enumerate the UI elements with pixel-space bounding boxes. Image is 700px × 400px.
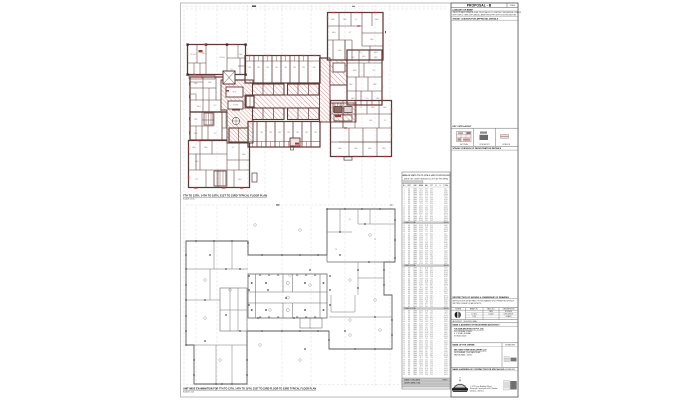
svg-text:98.8: 98.8 — [430, 332, 433, 334]
svg-text:90.89: 90.89 — [444, 203, 448, 205]
svg-text:2BHK: 2BHK — [413, 336, 417, 338]
svg-text:88.17: 88.17 — [419, 313, 423, 315]
svg-text:2BHK: 2BHK — [413, 317, 417, 319]
svg-text:102.5: 102.5 — [430, 285, 434, 287]
svg-text:409: 409 — [408, 229, 411, 231]
svg-text:78.75: 78.75 — [419, 233, 423, 235]
svg-text:2BHK: 2BHK — [413, 190, 417, 192]
svg-text:4.61: 4.61 — [425, 315, 428, 317]
svg-text:2BHK: 2BHK — [413, 210, 417, 212]
svg-text:4.98: 4.98 — [425, 364, 428, 366]
svg-text:9999.9: 9999.9 — [443, 379, 448, 381]
svg-text:90.2: 90.2 — [444, 188, 447, 190]
svg-text:2BHK: 2BHK — [413, 366, 417, 368]
svg-text:2BHK: 2BHK — [413, 351, 417, 353]
svg-text:2BHK: 2BHK — [413, 285, 417, 287]
svg-text:86.61: 86.61 — [419, 218, 423, 220]
svg-text:2BHK: 2BHK — [413, 214, 417, 216]
svg-text:8.2: 8.2 — [426, 231, 428, 233]
svg-text:ROOM: ROOM — [190, 54, 196, 56]
svg-text:49.41: 49.41 — [419, 250, 423, 252]
svg-text:209: 209 — [408, 205, 411, 207]
svg-text:63.19: 63.19 — [444, 364, 448, 366]
svg-text:88.33: 88.33 — [419, 332, 423, 334]
svg-text:102: 102 — [408, 212, 411, 214]
svg-text:52.03: 52.03 — [419, 199, 423, 201]
svg-text:3.64: 3.64 — [425, 370, 428, 372]
svg-text:67: 67 — [403, 336, 405, 338]
svg-text:26: 26 — [403, 244, 405, 246]
svg-text:AREA OF UNITS 7TH TO 12TH & 14: AREA OF UNITS 7TH TO 12TH & 14TH TO 19TH… — [403, 174, 451, 177]
svg-text:10: 10 — [403, 207, 405, 209]
svg-text:62.54: 62.54 — [444, 205, 448, 207]
svg-text:69: 69 — [403, 340, 405, 342]
svg-text:84.52: 84.52 — [419, 207, 423, 209]
svg-text:2BHK: 2BHK — [413, 334, 417, 336]
svg-text:101.0: 101.0 — [430, 317, 434, 319]
svg-text:209: 209 — [408, 340, 411, 342]
svg-text:18: 18 — [403, 227, 405, 229]
svg-text:201: 201 — [408, 278, 411, 280]
svg-text:RESTRICTION OF SIGNING & OWNER: RESTRICTION OF SIGNING & OWNERSHIP OF DR… — [453, 296, 510, 299]
svg-text:21: 21 — [403, 233, 405, 235]
svg-text:58.1: 58.1 — [430, 235, 433, 237]
svg-text:31: 31 — [403, 255, 405, 257]
svg-text:52.59: 52.59 — [419, 368, 423, 370]
svg-text:302: 302 — [408, 368, 411, 370]
svg-text:2BHK: 2BHK — [413, 315, 417, 317]
svg-text:46.03: 46.03 — [419, 289, 423, 291]
svg-text:41: 41 — [403, 278, 405, 280]
svg-text:95.6: 95.6 — [430, 231, 433, 233]
svg-text:52.12: 52.12 — [419, 205, 423, 207]
svg-text:89.07: 89.07 — [419, 195, 423, 197]
svg-text:306: 306 — [408, 334, 411, 336]
svg-text:55.4: 55.4 — [430, 252, 433, 254]
svg-text:306: 306 — [408, 199, 411, 201]
svg-text:2BHK: 2BHK — [413, 225, 417, 227]
svg-text:403: 403 — [408, 193, 411, 195]
svg-text:300: 300 — [408, 252, 411, 254]
svg-text:66.9: 66.9 — [430, 361, 433, 363]
svg-text:51.06: 51.06 — [419, 353, 423, 355]
svg-text:92.99: 92.99 — [444, 302, 448, 304]
svg-text:81: 81 — [403, 366, 405, 368]
svg-text:207: 207 — [408, 225, 411, 227]
svg-text:SIGNATURE: SIGNATURE — [505, 368, 516, 371]
svg-text:17 SLB: 17 SLB — [472, 314, 477, 316]
svg-text:72.1: 72.1 — [430, 315, 433, 317]
svg-text:25: 25 — [403, 242, 405, 244]
svg-text:63.11: 63.11 — [444, 368, 448, 370]
svg-text:407: 407 — [408, 291, 411, 293]
svg-text:306: 306 — [408, 289, 411, 291]
svg-text:50: 50 — [403, 297, 405, 299]
svg-text:81.04: 81.04 — [444, 315, 448, 317]
svg-text:KIT: KIT — [196, 179, 199, 181]
svg-text:308: 308 — [408, 317, 411, 319]
svg-text:79.37: 79.37 — [444, 345, 448, 347]
svg-text:999.99: 999.99 — [444, 308, 449, 310]
svg-text:5.81: 5.81 — [425, 353, 428, 355]
svg-text:304: 304 — [408, 216, 411, 218]
svg-text:24: 24 — [403, 240, 405, 242]
svg-text:52.53: 52.53 — [419, 235, 423, 237]
svg-text:3.27: 3.27 — [425, 197, 428, 199]
svg-text:407: 407 — [408, 201, 411, 203]
svg-text:65.4: 65.4 — [430, 347, 433, 349]
svg-text:2BHK: 2BHK — [413, 313, 417, 315]
svg-text:94.2: 94.2 — [430, 229, 433, 231]
svg-text:13: 13 — [403, 214, 405, 216]
svg-text:60.82: 60.82 — [419, 227, 423, 229]
svg-text:54.57: 54.57 — [419, 276, 423, 278]
svg-text:207: 207 — [408, 315, 411, 317]
svg-text:65.62: 65.62 — [444, 246, 448, 248]
svg-text:64.95: 64.95 — [419, 311, 423, 313]
svg-text:2BHK: 2BHK — [413, 361, 417, 363]
svg-text:40.63: 40.63 — [419, 300, 423, 302]
svg-text:2BHK: 2BHK — [413, 193, 417, 195]
svg-text:58: 58 — [403, 317, 405, 319]
svg-text:71.8: 71.8 — [430, 357, 433, 359]
svg-text:6.03: 6.03 — [425, 214, 428, 216]
svg-text:2BHK: 2BHK — [413, 357, 417, 359]
svg-text:306: 306 — [408, 244, 411, 246]
svg-text:86.36: 86.36 — [419, 259, 423, 261]
svg-text:63.1: 63.1 — [430, 268, 433, 270]
svg-text:43.49: 43.49 — [419, 293, 423, 295]
svg-text:999.99: 999.99 — [444, 265, 449, 267]
svg-text:KIT: KIT — [214, 105, 217, 107]
svg-text:113.68: 113.68 — [444, 355, 448, 357]
svg-text:48.04: 48.04 — [444, 328, 448, 330]
svg-text:87.39: 87.39 — [419, 231, 423, 233]
svg-text:9.85: 9.85 — [425, 340, 428, 342]
svg-text:4.79: 4.79 — [425, 201, 428, 203]
svg-text:76.5: 76.5 — [430, 311, 433, 313]
svg-text:308: 308 — [408, 359, 411, 361]
svg-text:30: 30 — [403, 252, 405, 254]
svg-text:90.19: 90.19 — [419, 317, 423, 319]
svg-text:45.1: 45.1 — [420, 216, 423, 218]
svg-text:102.74: 102.74 — [444, 229, 449, 231]
svg-text:2BHK: 2BHK — [413, 276, 417, 278]
svg-text:2BHK: 2BHK — [413, 195, 417, 197]
svg-text:2BHK: 2BHK — [413, 353, 417, 355]
svg-text:5.6: 5.6 — [426, 235, 428, 237]
svg-text:55.24: 55.24 — [444, 289, 448, 291]
svg-text:105.84: 105.84 — [444, 270, 449, 272]
svg-text:2BHK: 2BHK — [413, 270, 417, 272]
svg-text:113.83: 113.83 — [444, 285, 448, 287]
svg-text:100.27: 100.27 — [444, 291, 449, 293]
svg-text:NAVI MUMBAI - 400705: NAVI MUMBAI - 400705 — [454, 353, 472, 356]
svg-text:2BHK: 2BHK — [413, 338, 417, 340]
svg-text:79: 79 — [403, 361, 405, 363]
svg-text:75: 75 — [403, 353, 405, 355]
svg-text:20: 20 — [403, 231, 405, 233]
svg-text:7.59: 7.59 — [425, 285, 428, 287]
svg-text:4.4: 4.4 — [426, 212, 428, 214]
svg-text:105.95: 105.95 — [444, 336, 449, 338]
svg-text:2BHK: 2BHK — [413, 242, 417, 244]
svg-text:59.8: 59.8 — [430, 276, 433, 278]
svg-text:304: 304 — [408, 351, 411, 353]
svg-text:90.4: 90.4 — [430, 291, 433, 293]
svg-text:96.61: 96.61 — [444, 193, 448, 195]
svg-text:2BHK: 2BHK — [413, 349, 417, 351]
svg-text:33: 33 — [403, 259, 405, 261]
svg-text:5.36: 5.36 — [425, 278, 428, 280]
svg-text:403: 403 — [408, 283, 411, 285]
svg-text:54.0: 54.0 — [444, 287, 447, 289]
svg-text:63.5: 63.5 — [430, 304, 433, 306]
svg-text:7.66: 7.66 — [425, 357, 428, 359]
svg-text:103.2: 103.2 — [430, 255, 434, 257]
svg-text:302: 302 — [408, 280, 411, 282]
svg-text:5.22: 5.22 — [425, 276, 428, 278]
svg-text:2BHK: 2BHK — [413, 289, 417, 291]
svg-text:2BHK: 2BHK — [413, 355, 417, 357]
svg-text:73: 73 — [403, 349, 405, 351]
svg-text:75.17: 75.17 — [419, 188, 423, 190]
svg-text:11.49: 11.49 — [425, 268, 429, 270]
svg-text:52.68: 52.68 — [444, 366, 448, 368]
svg-text:74.96: 74.96 — [419, 242, 423, 244]
svg-text:2BHK: 2BHK — [413, 330, 417, 332]
svg-text:54.68: 54.68 — [419, 246, 423, 248]
svg-text:409: 409 — [408, 274, 411, 276]
svg-text:67.53: 67.53 — [419, 315, 423, 317]
svg-text:51.7: 51.7 — [430, 359, 433, 361]
svg-text:65.62: 65.62 — [444, 304, 448, 306]
svg-text:54.58: 54.58 — [419, 347, 423, 349]
svg-text:4.97: 4.97 — [425, 283, 428, 285]
svg-text:61.27: 61.27 — [444, 353, 448, 355]
svg-text:401: 401 — [408, 300, 411, 302]
svg-text:11: 11 — [403, 210, 405, 212]
svg-text:9.02: 9.02 — [425, 372, 428, 374]
svg-text:63: 63 — [403, 328, 405, 330]
svg-text:3.87: 3.87 — [425, 216, 428, 218]
svg-text:106: 106 — [408, 355, 411, 357]
svg-text:75.64: 75.64 — [419, 248, 423, 250]
svg-text:209: 209 — [408, 295, 411, 297]
svg-text:3.42: 3.42 — [425, 287, 428, 289]
svg-text:43.81: 43.81 — [419, 340, 423, 342]
svg-text:50.1: 50.1 — [430, 300, 433, 302]
svg-text:M: 98200 00000: M: 98200 00000 — [454, 336, 466, 338]
svg-text:409: 409 — [408, 319, 411, 321]
svg-text:78.4: 78.4 — [430, 188, 433, 190]
svg-text:90.3: 90.3 — [420, 274, 423, 276]
svg-text:65.48: 65.48 — [444, 276, 448, 278]
svg-text:201: 201 — [408, 366, 411, 368]
svg-text:8.57: 8.57 — [425, 229, 428, 231]
svg-text:70.31: 70.31 — [444, 361, 448, 363]
svg-text:84.76: 84.76 — [444, 257, 448, 259]
svg-text:STAGE 1 DESIGN FOR APPROVAL DE: STAGE 1 DESIGN FOR APPROVAL DETAILS — [453, 17, 499, 20]
svg-text:77.49: 77.49 — [419, 302, 423, 304]
svg-text:Mumbai - 400 001.: Mumbai - 400 001. — [470, 391, 485, 393]
svg-text:103.93: 103.93 — [444, 218, 449, 220]
svg-text:8.77: 8.77 — [425, 304, 428, 306]
svg-text:51.6: 51.6 — [420, 268, 423, 270]
svg-text:79.2: 79.2 — [430, 351, 433, 353]
svg-text:83.2: 83.2 — [430, 280, 433, 282]
svg-text:SCALE 1:100: SCALE 1:100 — [183, 198, 194, 201]
svg-text:15: 15 — [403, 218, 405, 220]
svg-text:48.4: 48.4 — [430, 287, 433, 289]
svg-text:74.1: 74.1 — [430, 345, 433, 347]
svg-text:9.98: 9.98 — [425, 259, 428, 261]
svg-text:14: 14 — [403, 216, 405, 218]
svg-text:2BHK: 2BHK — [413, 291, 417, 293]
svg-text:304: 304 — [408, 261, 411, 263]
svg-text:405: 405 — [408, 218, 411, 220]
svg-text:3.78: 3.78 — [425, 195, 428, 197]
svg-text:41.46: 41.46 — [419, 201, 423, 203]
svg-text:7.55: 7.55 — [425, 199, 428, 201]
svg-text:102: 102 — [408, 257, 411, 259]
svg-text:54.12: 54.12 — [444, 216, 448, 218]
svg-text:KIT: KIT — [373, 70, 376, 72]
svg-text:94.86: 94.86 — [419, 285, 423, 287]
svg-text:N: N — [435, 185, 436, 187]
svg-text:85.3: 85.3 — [430, 302, 433, 304]
svg-text:2BHK: 2BHK — [413, 252, 417, 254]
svg-text:2BHK: 2BHK — [413, 229, 417, 231]
svg-text:88.19: 88.19 — [444, 321, 448, 323]
svg-text:SCALE 1:100: SCALE 1:100 — [183, 390, 194, 393]
svg-text:106: 106 — [408, 313, 411, 315]
svg-text:9.57: 9.57 — [425, 351, 428, 353]
svg-text:HALL: HALL — [332, 31, 336, 34]
svg-text:57: 57 — [403, 315, 405, 317]
svg-text:80.51: 80.51 — [419, 193, 423, 195]
svg-text:45.56: 45.56 — [419, 240, 423, 242]
svg-text:66.14: 66.14 — [419, 345, 423, 347]
svg-text:72.98: 72.98 — [444, 227, 448, 229]
svg-text:NAME & ADDRESS OF REGISTERED A: NAME & ADDRESS OF REGISTERED ARCHITECT — [453, 323, 501, 326]
svg-text:5.92: 5.92 — [425, 328, 428, 330]
svg-text:5.01: 5.01 — [425, 190, 428, 192]
svg-text:3.23: 3.23 — [425, 188, 428, 190]
svg-text:2BHK: 2BHK — [413, 259, 417, 261]
svg-text:5.83: 5.83 — [425, 270, 428, 272]
svg-text:5.5: 5.5 — [426, 240, 428, 242]
svg-text:7.95: 7.95 — [425, 345, 428, 347]
svg-text:205: 205 — [408, 287, 411, 289]
svg-text:2BHK: 2BHK — [413, 216, 417, 218]
svg-text:86.58: 86.58 — [444, 280, 448, 282]
svg-text:76: 76 — [403, 355, 405, 357]
svg-text:300: 300 — [408, 342, 411, 344]
svg-text:TOWER: TOWER — [455, 309, 462, 311]
svg-text:52.19: 52.19 — [444, 293, 448, 295]
svg-text:2BHK: 2BHK — [413, 278, 417, 280]
svg-text:PROPOSAL - B: PROPOSAL - B — [467, 3, 492, 7]
svg-text:4.38: 4.38 — [425, 321, 428, 323]
svg-text:2BHK: 2BHK — [413, 280, 417, 282]
svg-text:2BHK: 2BHK — [413, 342, 417, 344]
svg-text:2BHK: 2BHK — [413, 188, 417, 190]
svg-text:46.66: 46.66 — [419, 359, 423, 361]
svg-text:113.75: 113.75 — [444, 295, 448, 297]
svg-text:70.63: 70.63 — [419, 257, 423, 259]
svg-text:AREA / FL: AREA / FL — [470, 308, 478, 311]
svg-text:53: 53 — [403, 304, 405, 306]
svg-text:2BHK: 2BHK — [413, 248, 417, 250]
svg-text:63.27: 63.27 — [419, 349, 423, 351]
svg-text:37: 37 — [403, 270, 405, 272]
svg-text:62: 62 — [403, 325, 405, 327]
svg-text:65.5: 65.5 — [444, 347, 447, 349]
svg-text:48: 48 — [403, 293, 405, 295]
svg-text:89.95: 89.95 — [444, 242, 448, 244]
svg-text:68.29: 68.29 — [444, 334, 448, 336]
svg-text:94.42: 94.42 — [419, 255, 423, 257]
svg-text:83: 83 — [403, 370, 405, 372]
svg-text:70.45: 70.45 — [444, 212, 448, 214]
svg-text:UNIT: UNIT — [407, 185, 411, 187]
svg-text:96.3: 96.3 — [430, 259, 433, 261]
svg-text:201: 201 — [408, 188, 411, 190]
svg-text:7.13: 7.13 — [425, 274, 428, 276]
svg-text:403: 403 — [408, 370, 411, 372]
svg-text:2BHK: 2BHK — [413, 325, 417, 327]
svg-text:403: 403 — [408, 238, 411, 240]
svg-text:4.89: 4.89 — [425, 244, 428, 246]
svg-text:94.73: 94.73 — [419, 355, 423, 357]
svg-text:43.9: 43.9 — [420, 366, 423, 368]
svg-text:112.09: 112.09 — [444, 297, 448, 299]
svg-text:104: 104 — [408, 372, 411, 374]
svg-text:8.48: 8.48 — [425, 248, 428, 250]
svg-text:84: 84 — [403, 372, 405, 374]
svg-text:82.6: 82.6 — [430, 272, 433, 274]
svg-text:2BHK: 2BHK — [413, 268, 417, 270]
svg-text:53.09: 53.09 — [419, 372, 423, 374]
svg-text:72.15: 72.15 — [419, 280, 423, 282]
svg-text:8.76: 8.76 — [425, 255, 428, 257]
svg-text:108: 108 — [408, 203, 411, 205]
svg-text:108: 108 — [408, 248, 411, 250]
svg-text:209: 209 — [408, 250, 411, 252]
svg-text:28: 28 — [403, 248, 405, 250]
svg-text:2BHK: 2BHK — [413, 272, 417, 274]
svg-text:HALL: HALL — [195, 160, 199, 163]
svg-text:65.2: 65.2 — [430, 319, 433, 321]
svg-text:17: 17 — [403, 225, 405, 227]
svg-text:2BHK: 2BHK — [413, 283, 417, 285]
svg-text:405: 405 — [408, 311, 411, 313]
svg-text:108.36: 108.36 — [444, 274, 449, 276]
svg-text:44.39: 44.39 — [419, 238, 423, 240]
svg-text:201: 201 — [408, 323, 411, 325]
svg-text:2BHK: 2BHK — [413, 246, 417, 248]
svg-text:103.63: 103.63 — [444, 259, 449, 261]
svg-text:55.99: 55.99 — [444, 359, 448, 361]
svg-text:401: 401 — [408, 210, 411, 212]
svg-text:56: 56 — [403, 313, 405, 315]
svg-text:2BHK: 2BHK — [413, 359, 417, 361]
svg-text:63.12: 63.12 — [444, 261, 448, 263]
svg-text:2BHK: 2BHK — [413, 300, 417, 302]
svg-text:401: 401 — [408, 345, 411, 347]
svg-text:93.6: 93.6 — [430, 210, 433, 212]
